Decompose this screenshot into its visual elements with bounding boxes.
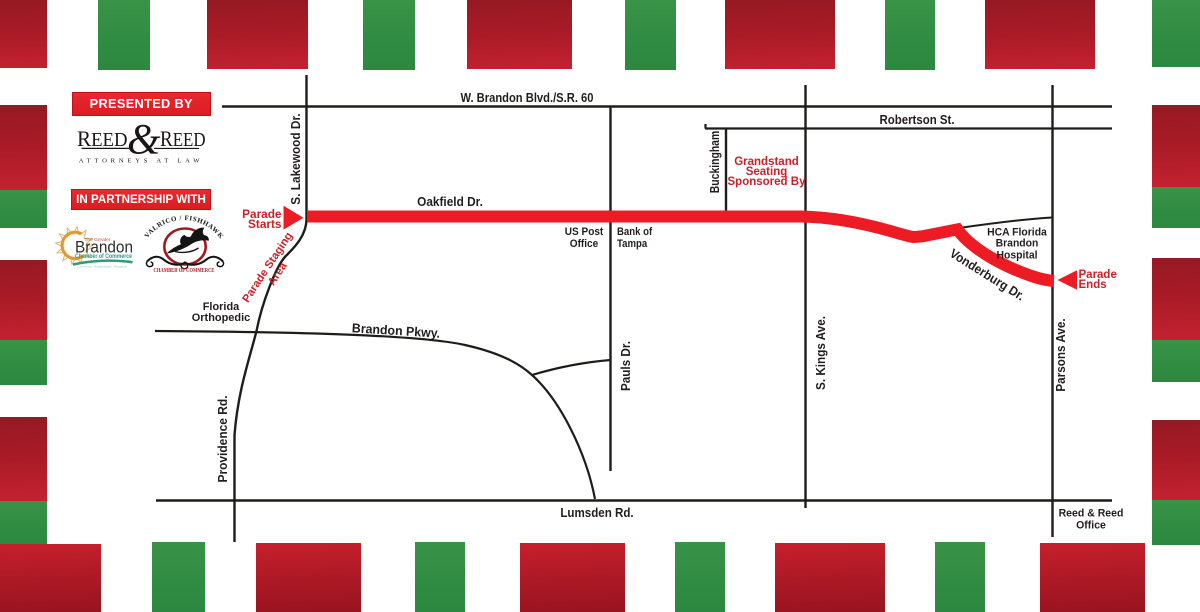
svg-text:CHAMBER OF COMMERCE: CHAMBER OF COMMERCE bbox=[154, 268, 215, 274]
